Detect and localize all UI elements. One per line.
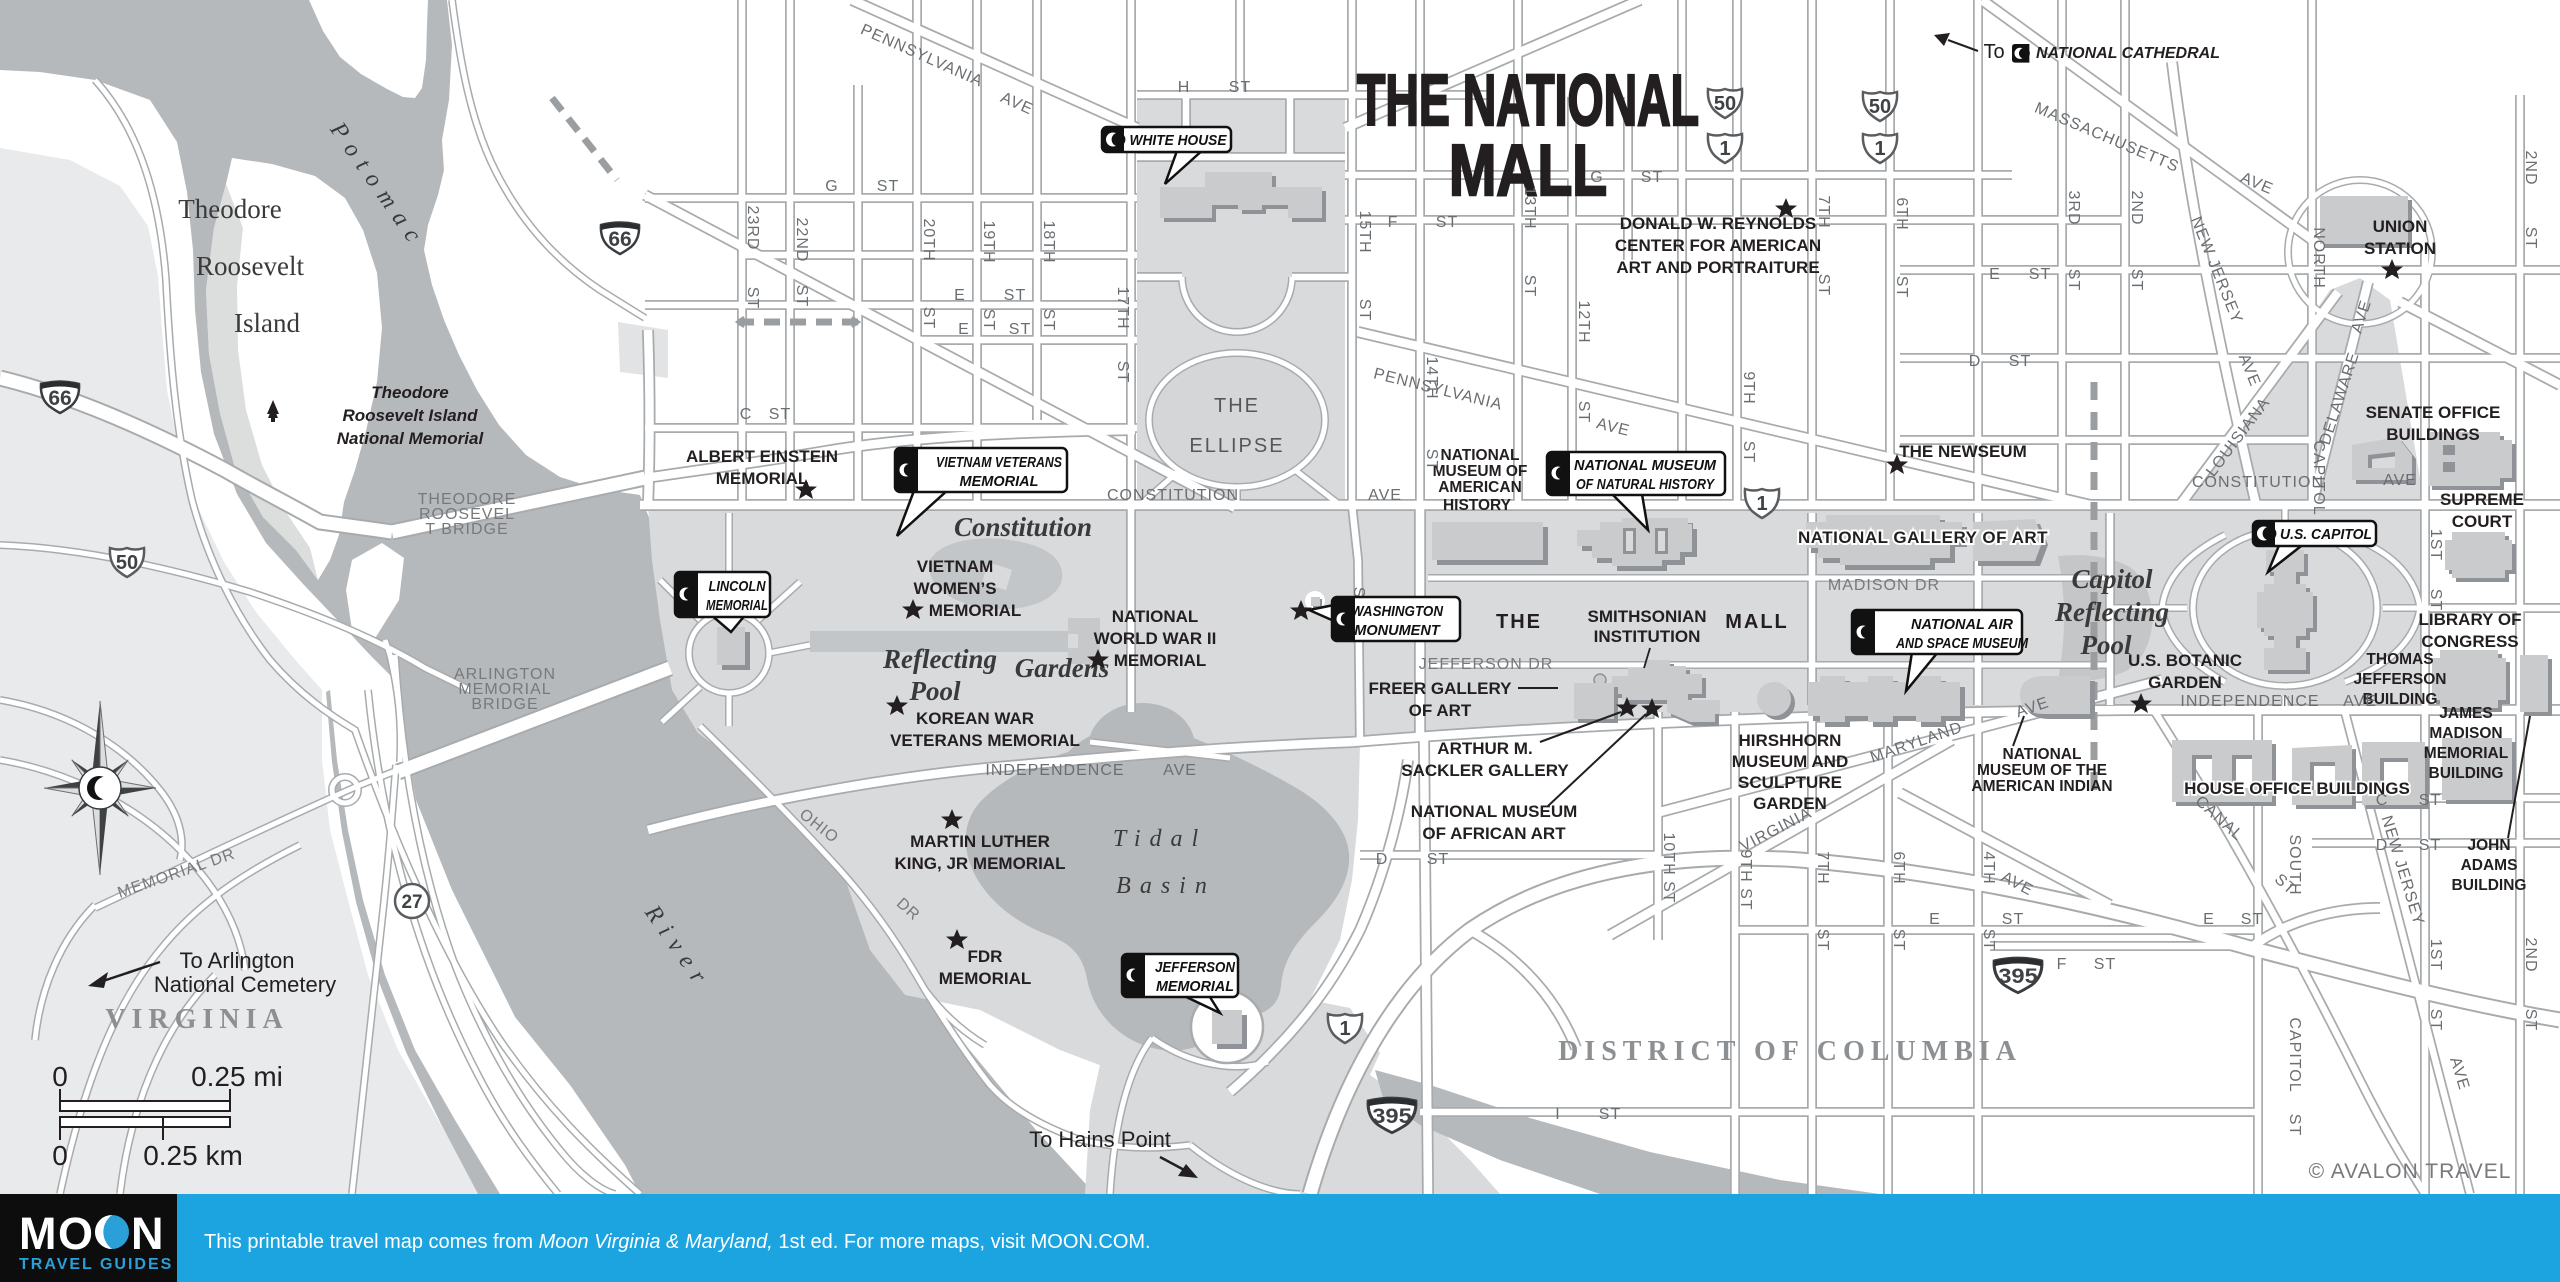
svg-text:ST: ST [2286, 1114, 2303, 1136]
svg-text:66: 66 [48, 387, 71, 410]
svg-text:23RD: 23RD [744, 206, 761, 251]
svg-text:MONUMENT: MONUMENT [1354, 623, 1441, 639]
svg-text:1ST: 1ST [2427, 939, 2444, 971]
svg-text:SMITHSONIAN: SMITHSONIAN [1588, 607, 1707, 626]
svg-text:10TH ST: 10TH ST [1660, 832, 1677, 903]
svg-text:GARDEN: GARDEN [1753, 794, 1827, 813]
svg-text:20TH: 20TH [920, 218, 937, 261]
svg-text:MUSEUM OF: MUSEUM OF [1433, 463, 1528, 480]
svg-text:4TH: 4TH [1980, 851, 1997, 884]
svg-text:DONALD W. REYNOLDS: DONALD W. REYNOLDS [1620, 214, 1816, 233]
svg-text:MEMORIAL: MEMORIAL [939, 969, 1032, 988]
svg-text:ST: ST [1740, 441, 1757, 463]
svg-text:0: 0 [52, 1061, 68, 1092]
svg-text:E: E [2203, 911, 2215, 928]
svg-text:ST: ST [1575, 401, 1592, 423]
svg-text:ST: ST [2065, 269, 2082, 291]
svg-text:AVE: AVE [1368, 487, 1402, 504]
svg-text:ST: ST [2522, 227, 2539, 249]
svg-text:18TH: 18TH [1040, 220, 1057, 263]
svg-text:ST: ST [980, 309, 997, 331]
svg-text:NATIONAL MUSEUM: NATIONAL MUSEUM [1574, 458, 1717, 474]
svg-text:CENTER FOR AMERICAN: CENTER FOR AMERICAN [1615, 236, 1821, 255]
svg-text:ST: ST [1980, 929, 1997, 951]
svg-text:INDEPENDENCE: INDEPENDENCE [2180, 693, 2319, 710]
svg-text:Pool: Pool [2080, 630, 2132, 660]
svg-text:NATIONAL AIR: NATIONAL AIR [1911, 617, 2014, 633]
svg-text:50: 50 [1714, 93, 1736, 115]
svg-text:50: 50 [1869, 96, 1891, 118]
svg-text:LIBRARY OF: LIBRARY OF [2419, 610, 2522, 629]
svg-text:G: G [1590, 169, 1603, 186]
svg-text:ST: ST [1641, 169, 1663, 186]
svg-text:To Arlington: To Arlington [180, 948, 295, 973]
svg-text:ST: ST [1893, 276, 1910, 298]
svg-text:22ND: 22ND [793, 218, 810, 263]
svg-text:M: M [19, 1208, 57, 1259]
svg-text:Roosevelt Island: Roosevelt Island [342, 406, 478, 425]
svg-text:ST: ST [2419, 837, 2441, 854]
svg-text:COURT: COURT [2452, 512, 2513, 531]
svg-text:THE NATIONAL: THE NATIONAL [1357, 61, 1699, 141]
svg-text:FREER GALLERY: FREER GALLERY [1369, 679, 1513, 698]
svg-text:ST: ST [1815, 274, 1832, 296]
svg-text:ARTHUR M.: ARTHUR M. [1437, 739, 1532, 758]
svg-text:12TH: 12TH [1575, 300, 1592, 343]
svg-text:AMERICAN: AMERICAN [1438, 479, 1522, 496]
svg-text:SCULPTURE: SCULPTURE [1738, 773, 1842, 792]
svg-text:ST: ST [1890, 929, 1907, 951]
svg-text:MEMORIAL: MEMORIAL [1156, 979, 1234, 995]
svg-text:395: 395 [1372, 1104, 1412, 1127]
svg-text:GARDEN: GARDEN [2148, 673, 2222, 692]
svg-text:MADISON: MADISON [2429, 725, 2502, 742]
svg-text:ST: ST [1427, 851, 1449, 868]
svg-text:THE: THE [1214, 395, 1260, 417]
svg-text:ST: ST [1009, 321, 1031, 338]
svg-text:ST: ST [1599, 1106, 1621, 1123]
svg-text:O: O [58, 1208, 93, 1259]
svg-text:N: N [131, 1208, 164, 1259]
svg-text:VIRGINIA: VIRGINIA [105, 1004, 288, 1035]
svg-text:ST: ST [2427, 1009, 2444, 1031]
svg-text:ALBERT EINSTEIN: ALBERT EINSTEIN [686, 447, 838, 466]
svg-text:ST: ST [2094, 956, 2116, 973]
svg-text:MADISON DR: MADISON DR [1828, 577, 1940, 594]
svg-text:ADAMS: ADAMS [2461, 857, 2518, 874]
svg-text:JEFFERSON: JEFFERSON [2353, 671, 2446, 688]
svg-text:NATIONAL: NATIONAL [1441, 447, 1520, 464]
svg-text:© AVALON TRAVEL: © AVALON TRAVEL [2309, 1160, 2512, 1183]
svg-text:Pool: Pool [909, 676, 961, 706]
svg-text:UNION: UNION [2373, 217, 2428, 236]
svg-text:50: 50 [116, 552, 138, 574]
svg-text:ST: ST [769, 406, 791, 423]
svg-text:0: 0 [52, 1140, 68, 1171]
svg-text:1: 1 [1874, 138, 1885, 160]
svg-text:CONSTITUTION: CONSTITUTION [1107, 487, 1239, 504]
svg-text:NATIONAL GALLERY OF ART: NATIONAL GALLERY OF ART [1798, 528, 2048, 547]
svg-text:I: I [1555, 1106, 1560, 1123]
svg-text:ST: ST [1040, 309, 1057, 331]
svg-text:BUILDING: BUILDING [2429, 765, 2504, 782]
svg-text:VIETNAM VETERANS: VIETNAM VETERANS [936, 455, 1062, 471]
svg-text:ST: ST [2427, 589, 2444, 611]
svg-text:6TH: 6TH [1893, 197, 1910, 230]
svg-text:Reflecting: Reflecting [882, 644, 997, 674]
svg-text:0.25 mi: 0.25 mi [191, 1061, 283, 1092]
svg-text:ST: ST [1229, 79, 1251, 96]
svg-text:AVE: AVE [1163, 762, 1197, 779]
svg-text:NORTH: NORTH [2310, 227, 2327, 289]
svg-text:ST: ST [1004, 287, 1026, 304]
svg-text:F: F [2057, 956, 2068, 973]
svg-text:27: 27 [401, 892, 422, 913]
svg-text:VIETNAM: VIETNAM [917, 557, 994, 576]
svg-text:SOUTH: SOUTH [2286, 835, 2303, 896]
svg-text:WASHINGTON: WASHINGTON [1351, 604, 1443, 620]
svg-text:OF ART: OF ART [1409, 701, 1472, 720]
svg-text:66: 66 [608, 228, 631, 251]
svg-text:LINCOLN: LINCOLN [709, 579, 766, 595]
svg-text:ST: ST [744, 287, 761, 309]
svg-text:FDR: FDR [968, 947, 1003, 966]
svg-text:C: C [740, 406, 753, 423]
svg-text:Constitution: Constitution [954, 512, 1092, 542]
svg-text:ART AND PORTRAITURE: ART AND PORTRAITURE [1616, 258, 1819, 277]
svg-text:CAPITOL: CAPITOL [2286, 1017, 2303, 1092]
svg-text:MUSEUM OF THE: MUSEUM OF THE [1977, 762, 2107, 779]
svg-text:KOREAN WAR: KOREAN WAR [916, 709, 1034, 728]
svg-text:E: E [1929, 911, 1941, 928]
svg-text:E: E [1989, 266, 2001, 283]
svg-text:ST: ST [1423, 449, 1440, 471]
svg-text:KING, JR MEMORIAL: KING, JR MEMORIAL [895, 854, 1066, 873]
svg-text:BUILDING: BUILDING [2452, 877, 2527, 894]
svg-text:ST: ST [1521, 275, 1538, 297]
svg-text:ST: ST [1114, 361, 1131, 383]
svg-text:0.25 km: 0.25 km [143, 1140, 243, 1171]
svg-text:INSTITUTION: INSTITUTION [1594, 627, 1701, 646]
svg-text:Reflecting: Reflecting [2054, 597, 2169, 627]
svg-text:AND SPACE MUSEUM: AND SPACE MUSEUM [1895, 636, 2029, 652]
svg-text:WHITE HOUSE: WHITE HOUSE [1130, 133, 1228, 149]
svg-text:9TH: 9TH [1740, 371, 1757, 404]
svg-text:Roosevelt: Roosevelt [196, 251, 304, 281]
svg-text:NATIONAL: NATIONAL [1112, 607, 1199, 626]
svg-text:1: 1 [1339, 1018, 1350, 1040]
svg-text:INDEPENDENCE: INDEPENDENCE [985, 762, 1124, 779]
svg-text:ST: ST [1436, 214, 1458, 231]
svg-text:ST: ST [2009, 353, 2031, 370]
svg-text:AVE: AVE [2343, 693, 2377, 710]
svg-text:MEMORIAL: MEMORIAL [706, 598, 768, 614]
svg-text:National Cemetery: National Cemetery [154, 972, 336, 997]
svg-text:STATION: STATION [2364, 239, 2436, 258]
svg-text:D: D [1969, 353, 1982, 370]
svg-text:17TH: 17TH [1114, 286, 1131, 329]
svg-text:JEFFERSON DR: JEFFERSON DR [1419, 656, 1554, 673]
svg-text:ELLIPSE: ELLIPSE [1189, 435, 1284, 457]
svg-text:MEMORIAL: MEMORIAL [1114, 651, 1207, 670]
svg-text:19TH: 19TH [980, 220, 997, 263]
svg-text:NATIONAL MUSEUM: NATIONAL MUSEUM [1411, 802, 1578, 821]
svg-text:ST: ST [2002, 911, 2024, 928]
svg-text:D: D [1376, 851, 1389, 868]
svg-text:15TH: 15TH [1356, 210, 1373, 253]
svg-text:E: E [958, 321, 970, 338]
svg-text:AVE: AVE [2383, 472, 2417, 489]
svg-text:1: 1 [1719, 138, 1730, 160]
svg-text:OF NATURAL HISTORY: OF NATURAL HISTORY [1576, 477, 1715, 493]
svg-text:7TH: 7TH [1814, 851, 1831, 884]
svg-text:G: G [825, 178, 838, 195]
svg-text:ST: ST [2419, 792, 2441, 809]
svg-text:To: To [1983, 41, 2004, 63]
svg-text:NATIONAL: NATIONAL [2003, 746, 2082, 763]
svg-text:SACKLER GALLERY: SACKLER GALLERY [1401, 761, 1569, 780]
svg-text:HIRSHHORN: HIRSHHORN [1739, 731, 1842, 750]
svg-text:H: H [1178, 79, 1191, 96]
svg-text:OF AFRICAN ART: OF AFRICAN ART [1422, 824, 1566, 843]
svg-text:WOMEN’S: WOMEN’S [913, 579, 996, 598]
svg-text:SENATE OFFICE: SENATE OFFICE [2366, 403, 2501, 422]
svg-text:F: F [1388, 214, 1399, 231]
svg-text:MEMORIAL: MEMORIAL [929, 601, 1022, 620]
svg-text:T BRIDGE: T BRIDGE [425, 521, 508, 538]
svg-text:ST: ST [793, 285, 810, 307]
svg-text:6TH: 6TH [1890, 851, 1907, 884]
svg-text:SUPREME: SUPREME [2440, 490, 2524, 509]
svg-text:9TH ST: 9TH ST [1737, 849, 1754, 910]
svg-text:2ND: 2ND [2128, 190, 2145, 225]
svg-text:2ND: 2ND [2522, 937, 2539, 972]
svg-text:ST: ST [1356, 299, 1373, 321]
svg-text:WORLD WAR II: WORLD WAR II [1094, 629, 1217, 648]
svg-text:VETERANS MEMORIAL: VETERANS MEMORIAL [890, 731, 1080, 750]
svg-text:THE: THE [1496, 611, 1542, 633]
svg-text:ST: ST [2128, 269, 2145, 291]
svg-text:3RD: 3RD [2065, 190, 2082, 225]
svg-text:CONSTITUTION: CONSTITUTION [2192, 474, 2324, 491]
svg-text:MEMORIAL: MEMORIAL [716, 469, 809, 488]
svg-text:7TH: 7TH [1815, 195, 1832, 228]
svg-text:ST: ST [877, 178, 899, 195]
svg-text:Capitol: Capitol [2071, 564, 2153, 594]
svg-text:National Memorial: National Memorial [337, 429, 485, 448]
svg-text:ST: ST [1814, 929, 1831, 951]
svg-text:DISTRICT OF COLUMBIA: DISTRICT OF COLUMBIA [1558, 1036, 2022, 1067]
svg-text:ST: ST [2522, 1009, 2539, 1031]
svg-text:MEMORIAL: MEMORIAL [960, 474, 1039, 490]
svg-text:Tidal: Tidal [1113, 826, 1207, 852]
svg-text:BRIDGE: BRIDGE [471, 696, 538, 713]
svg-text:U.S. BOTANIC: U.S. BOTANIC [2128, 651, 2242, 670]
svg-text:MEMORIAL: MEMORIAL [2424, 745, 2508, 762]
svg-text:THOMAS: THOMAS [2366, 651, 2433, 668]
svg-text:Theodore: Theodore [178, 194, 281, 224]
svg-text:MARTIN LUTHER: MARTIN LUTHER [910, 832, 1050, 851]
svg-text:ST: ST [920, 307, 937, 329]
svg-text:THE NEWSEUM: THE NEWSEUM [1899, 442, 2027, 461]
svg-text:ST: ST [2241, 911, 2263, 928]
svg-text:HISTORY: HISTORY [1443, 497, 1512, 514]
svg-text:395: 395 [1998, 964, 2038, 987]
svg-text:ST: ST [2029, 266, 2051, 283]
svg-text:JAMES: JAMES [2439, 705, 2492, 722]
svg-text:JOHN: JOHN [2467, 837, 2510, 854]
svg-text:Basin: Basin [1116, 873, 1216, 899]
svg-text:U.S. CAPITOL: U.S. CAPITOL [2280, 527, 2372, 543]
svg-text:1ST: 1ST [2427, 529, 2444, 561]
svg-text:TRAVEL GUIDES: TRAVEL GUIDES [19, 1256, 173, 1273]
svg-text:AMERICAN INDIAN: AMERICAN INDIAN [1971, 778, 2112, 795]
svg-text:This printable travel map come: This printable travel map comes from Moo… [204, 1231, 1151, 1253]
svg-text:CONGRESS: CONGRESS [2421, 632, 2518, 651]
svg-text:1: 1 [1756, 493, 1767, 515]
svg-text:C: C [2376, 792, 2389, 809]
svg-text:2ND: 2ND [2522, 150, 2539, 185]
svg-text:13TH: 13TH [1521, 186, 1538, 229]
svg-text:E: E [954, 287, 966, 304]
svg-text:To Hains Point: To Hains Point [1029, 1127, 1171, 1152]
svg-text:MUSEUM AND: MUSEUM AND [1732, 752, 1848, 771]
svg-text:Island: Island [234, 308, 300, 338]
svg-text:MALL: MALL [1725, 611, 1789, 633]
svg-text:NATIONAL CATHEDRAL: NATIONAL CATHEDRAL [2036, 45, 2220, 62]
svg-text:Theodore: Theodore [371, 383, 448, 402]
svg-text:JEFFERSON: JEFFERSON [1155, 960, 1235, 976]
svg-text:BUILDINGS: BUILDINGS [2386, 425, 2480, 444]
